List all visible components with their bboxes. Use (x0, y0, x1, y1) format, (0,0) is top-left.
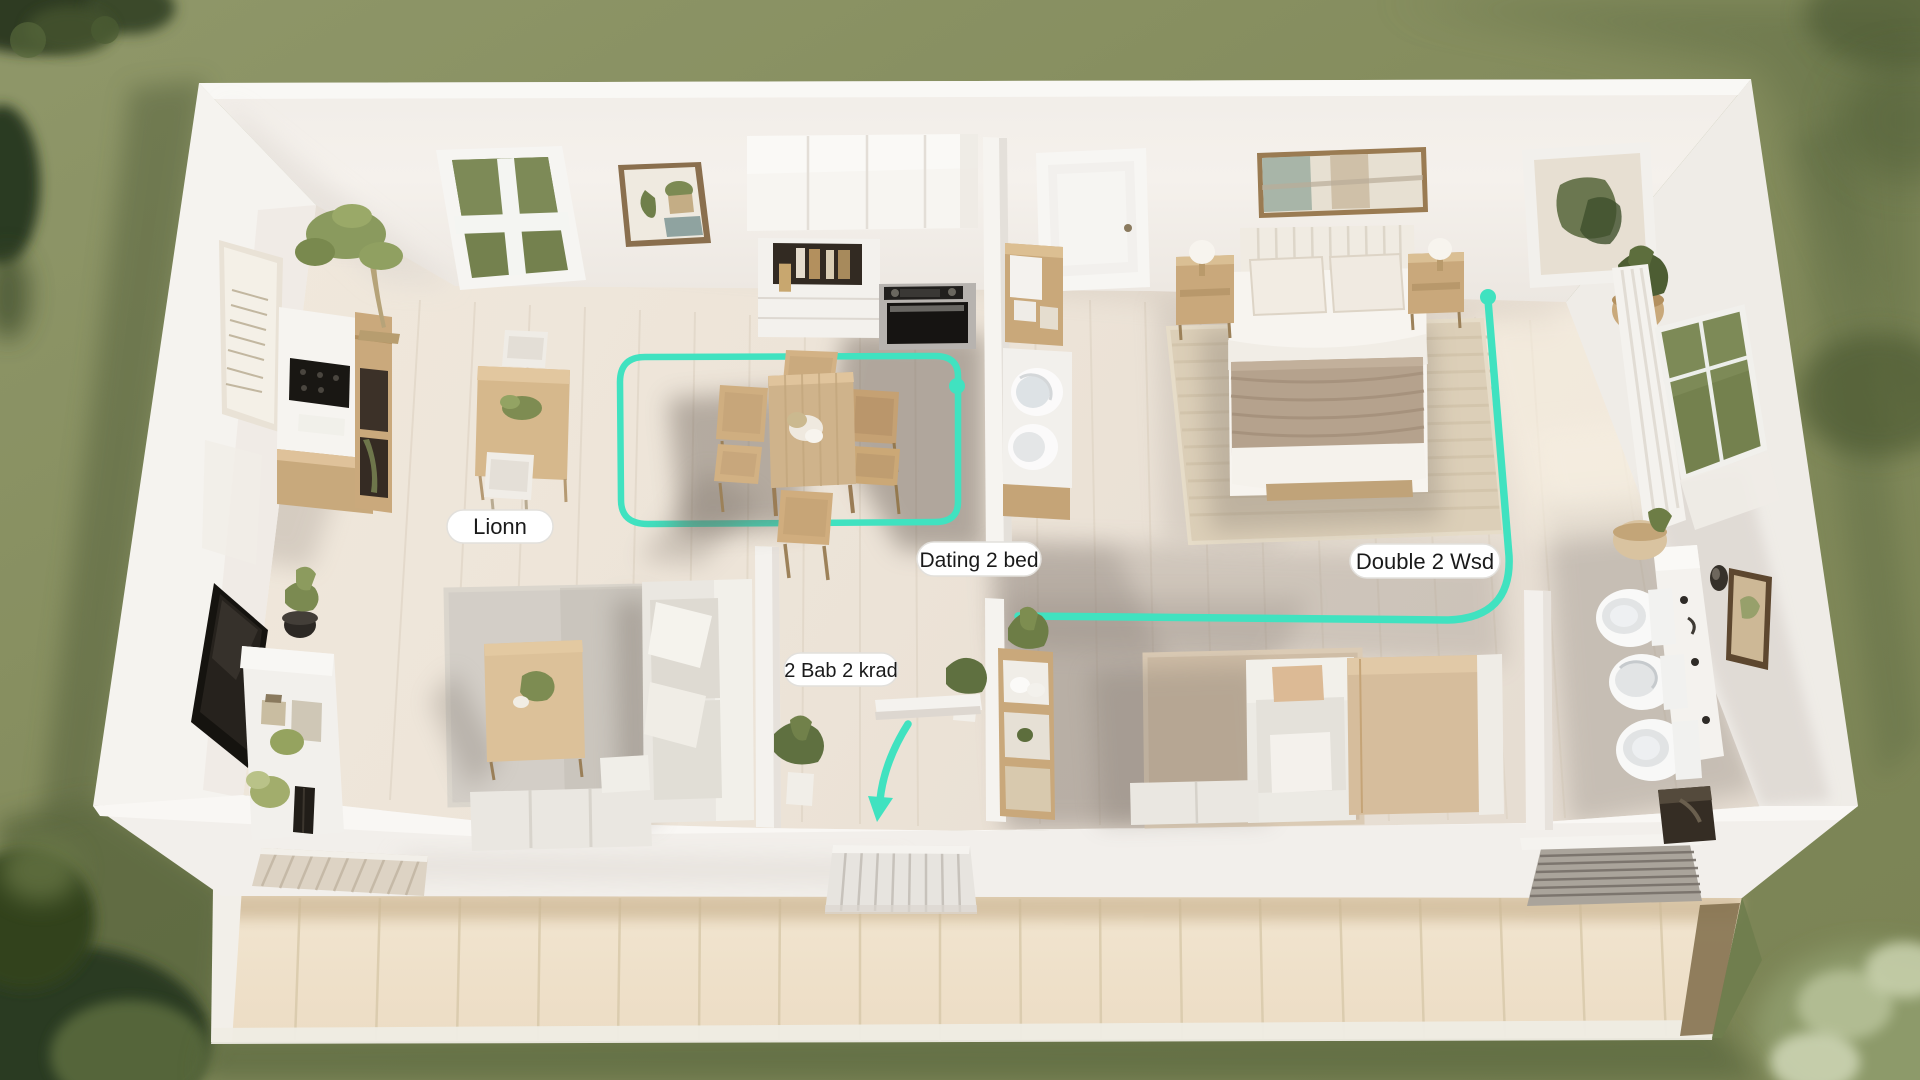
svg-text:Dating 2 bed: Dating 2 bed (919, 549, 1038, 572)
svg-text:2 Bab 2 krad: 2 Bab 2 krad (784, 660, 897, 682)
svg-text:Lionn: Lionn (473, 514, 527, 539)
svg-text:Double 2 Wsd: Double 2 Wsd (1356, 549, 1494, 574)
